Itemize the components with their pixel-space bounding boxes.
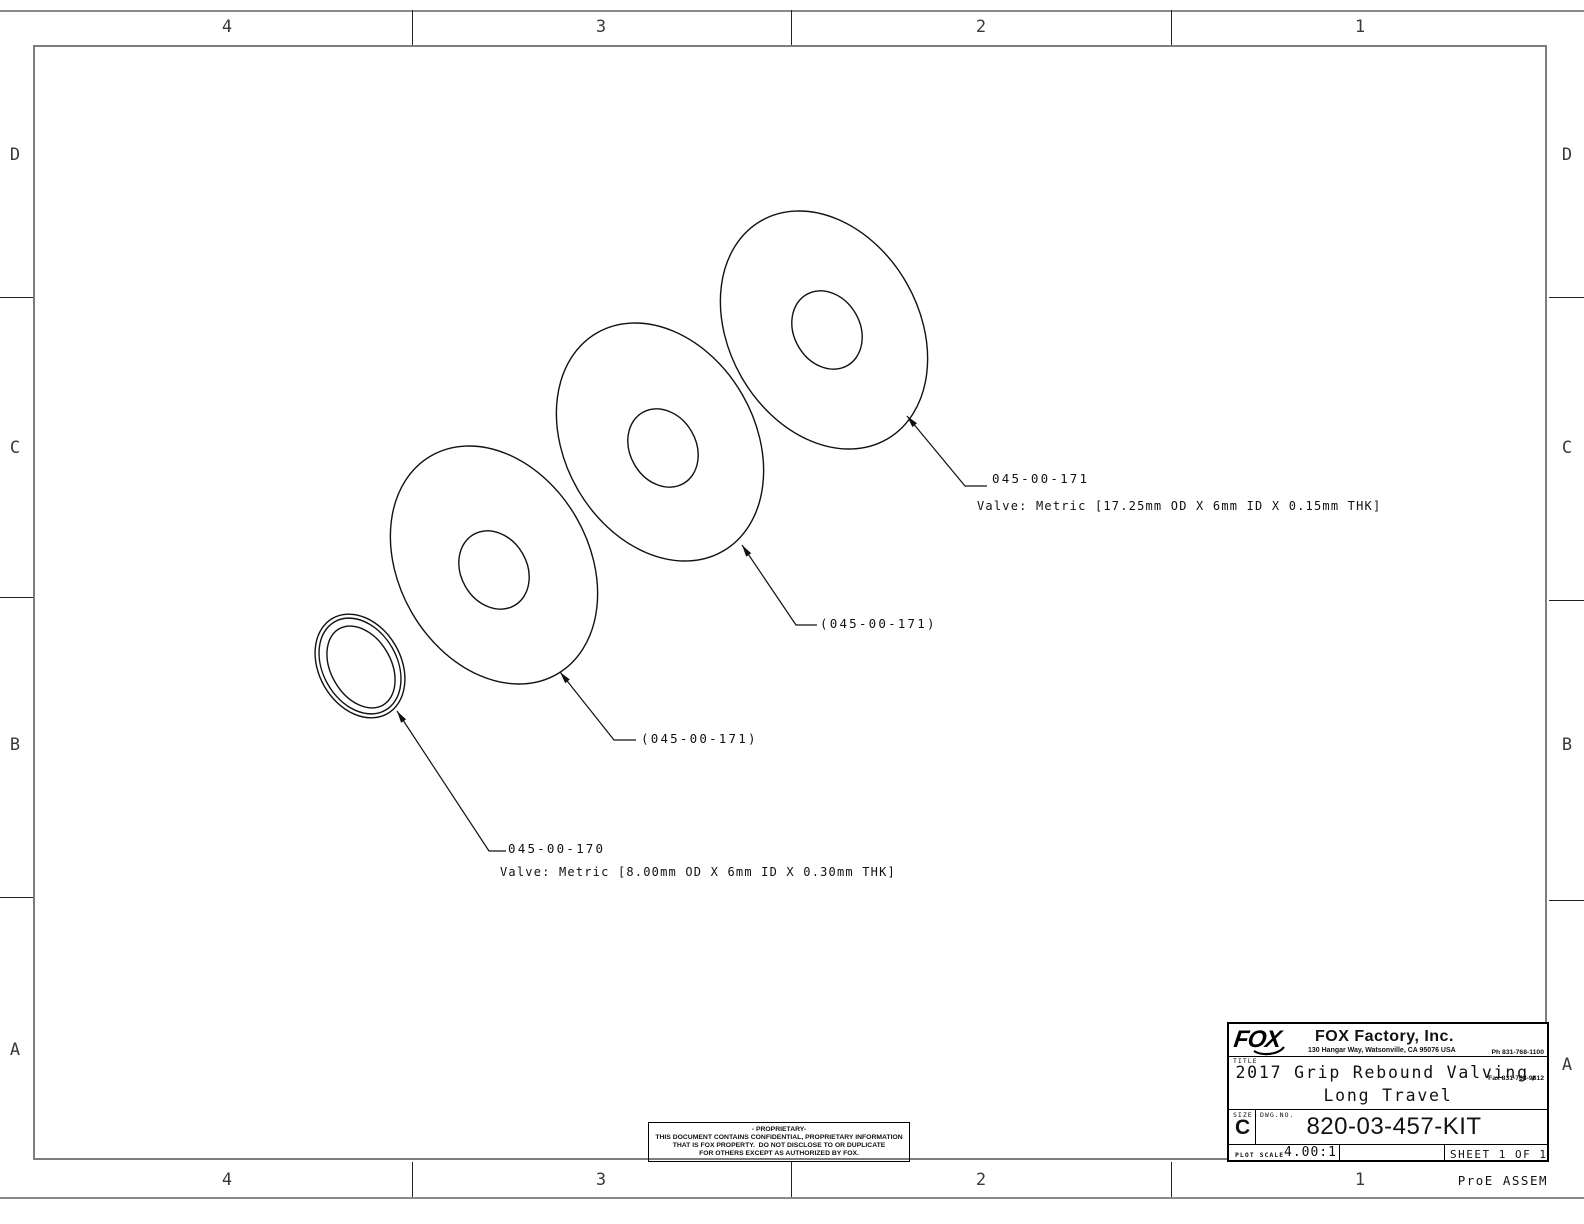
washer-3-outer (349, 408, 640, 721)
arrowhead-icon (742, 545, 751, 557)
washer-4-hole (313, 614, 409, 720)
plot-scale-label: PLOT SCALE (1235, 1151, 1284, 1159)
washer-4 (297, 598, 423, 734)
title-block-divider (1229, 1056, 1547, 1057)
title-block: FOX FOX Factory, Inc. 130 Hangar Way, Wa… (1227, 1022, 1549, 1162)
proprietary-line: - PROPRIETARY- (649, 1126, 909, 1134)
leader-3 (560, 672, 636, 740)
title-block-divider (1339, 1144, 1340, 1162)
callout-1-part: 045-00-171 (992, 471, 1089, 486)
washer-3 (349, 408, 640, 721)
callout-3-part: (045-00-171) (641, 731, 758, 746)
company-address: 130 Hangar Way, Watsonville, CA 95076 US… (1308, 1047, 1456, 1054)
title-block-divider (1229, 1109, 1547, 1110)
proprietary-line: FOR OTHERS EXCEPT AS AUTHORIZED BY FOX. (649, 1150, 909, 1158)
washer-1-outer (679, 173, 970, 486)
washer-4-outer (297, 598, 423, 734)
sheet-number: SHEET 1 OF 1 (1450, 1148, 1547, 1161)
footer-app-name: ProE ASSEM (1420, 1173, 1548, 1188)
callout-4-part: 045-00-170 (508, 841, 605, 856)
washer-1-hole (778, 278, 876, 382)
fox-logo: FOX (1232, 1026, 1308, 1056)
size-value: C (1235, 1116, 1250, 1140)
proprietary-line: THIS DOCUMENT CONTAINS CONFIDENTIAL, PRO… (649, 1134, 909, 1142)
drawing-title-line2: Long Travel (1229, 1086, 1547, 1105)
washer-2 (515, 285, 806, 598)
fox-logo-text: FOX (1232, 1026, 1285, 1053)
washer-1 (679, 173, 970, 486)
dwg-number: 820-03-457-KIT (1289, 1113, 1499, 1141)
proprietary-line: THAT IS FOX PROPERTY. DO NOT DISCLOSE TO… (649, 1142, 909, 1150)
washer-2-outer (515, 285, 806, 598)
arrowhead-icon (397, 711, 406, 723)
washer-2-hole (614, 396, 712, 500)
callout-4-desc: Valve: Metric [8.00mm OD X 6mm ID X 0.30… (500, 865, 896, 879)
washer-3-hole (445, 518, 543, 622)
callout-1-desc: Valve: Metric [17.25mm OD X 6mm ID X 0.1… (977, 499, 1381, 513)
title-block-divider (1229, 1144, 1547, 1145)
company-name: FOX Factory, Inc. (1315, 1028, 1454, 1046)
leader-1 (907, 416, 987, 486)
callout-2-part: (045-00-171) (820, 616, 937, 631)
washer-4-edge (302, 603, 417, 728)
proprietary-notice: - PROPRIETARY- THIS DOCUMENT CONTAINS CO… (648, 1122, 910, 1162)
leader-4 (397, 711, 506, 851)
leader-2 (742, 545, 817, 625)
plot-scale-value: 4.00:1 (1284, 1145, 1337, 1160)
title-block-divider (1444, 1144, 1445, 1162)
title-block-divider (1255, 1109, 1256, 1144)
drawing-title-line1: 2017 Grip Rebound Valving, (1229, 1063, 1547, 1082)
